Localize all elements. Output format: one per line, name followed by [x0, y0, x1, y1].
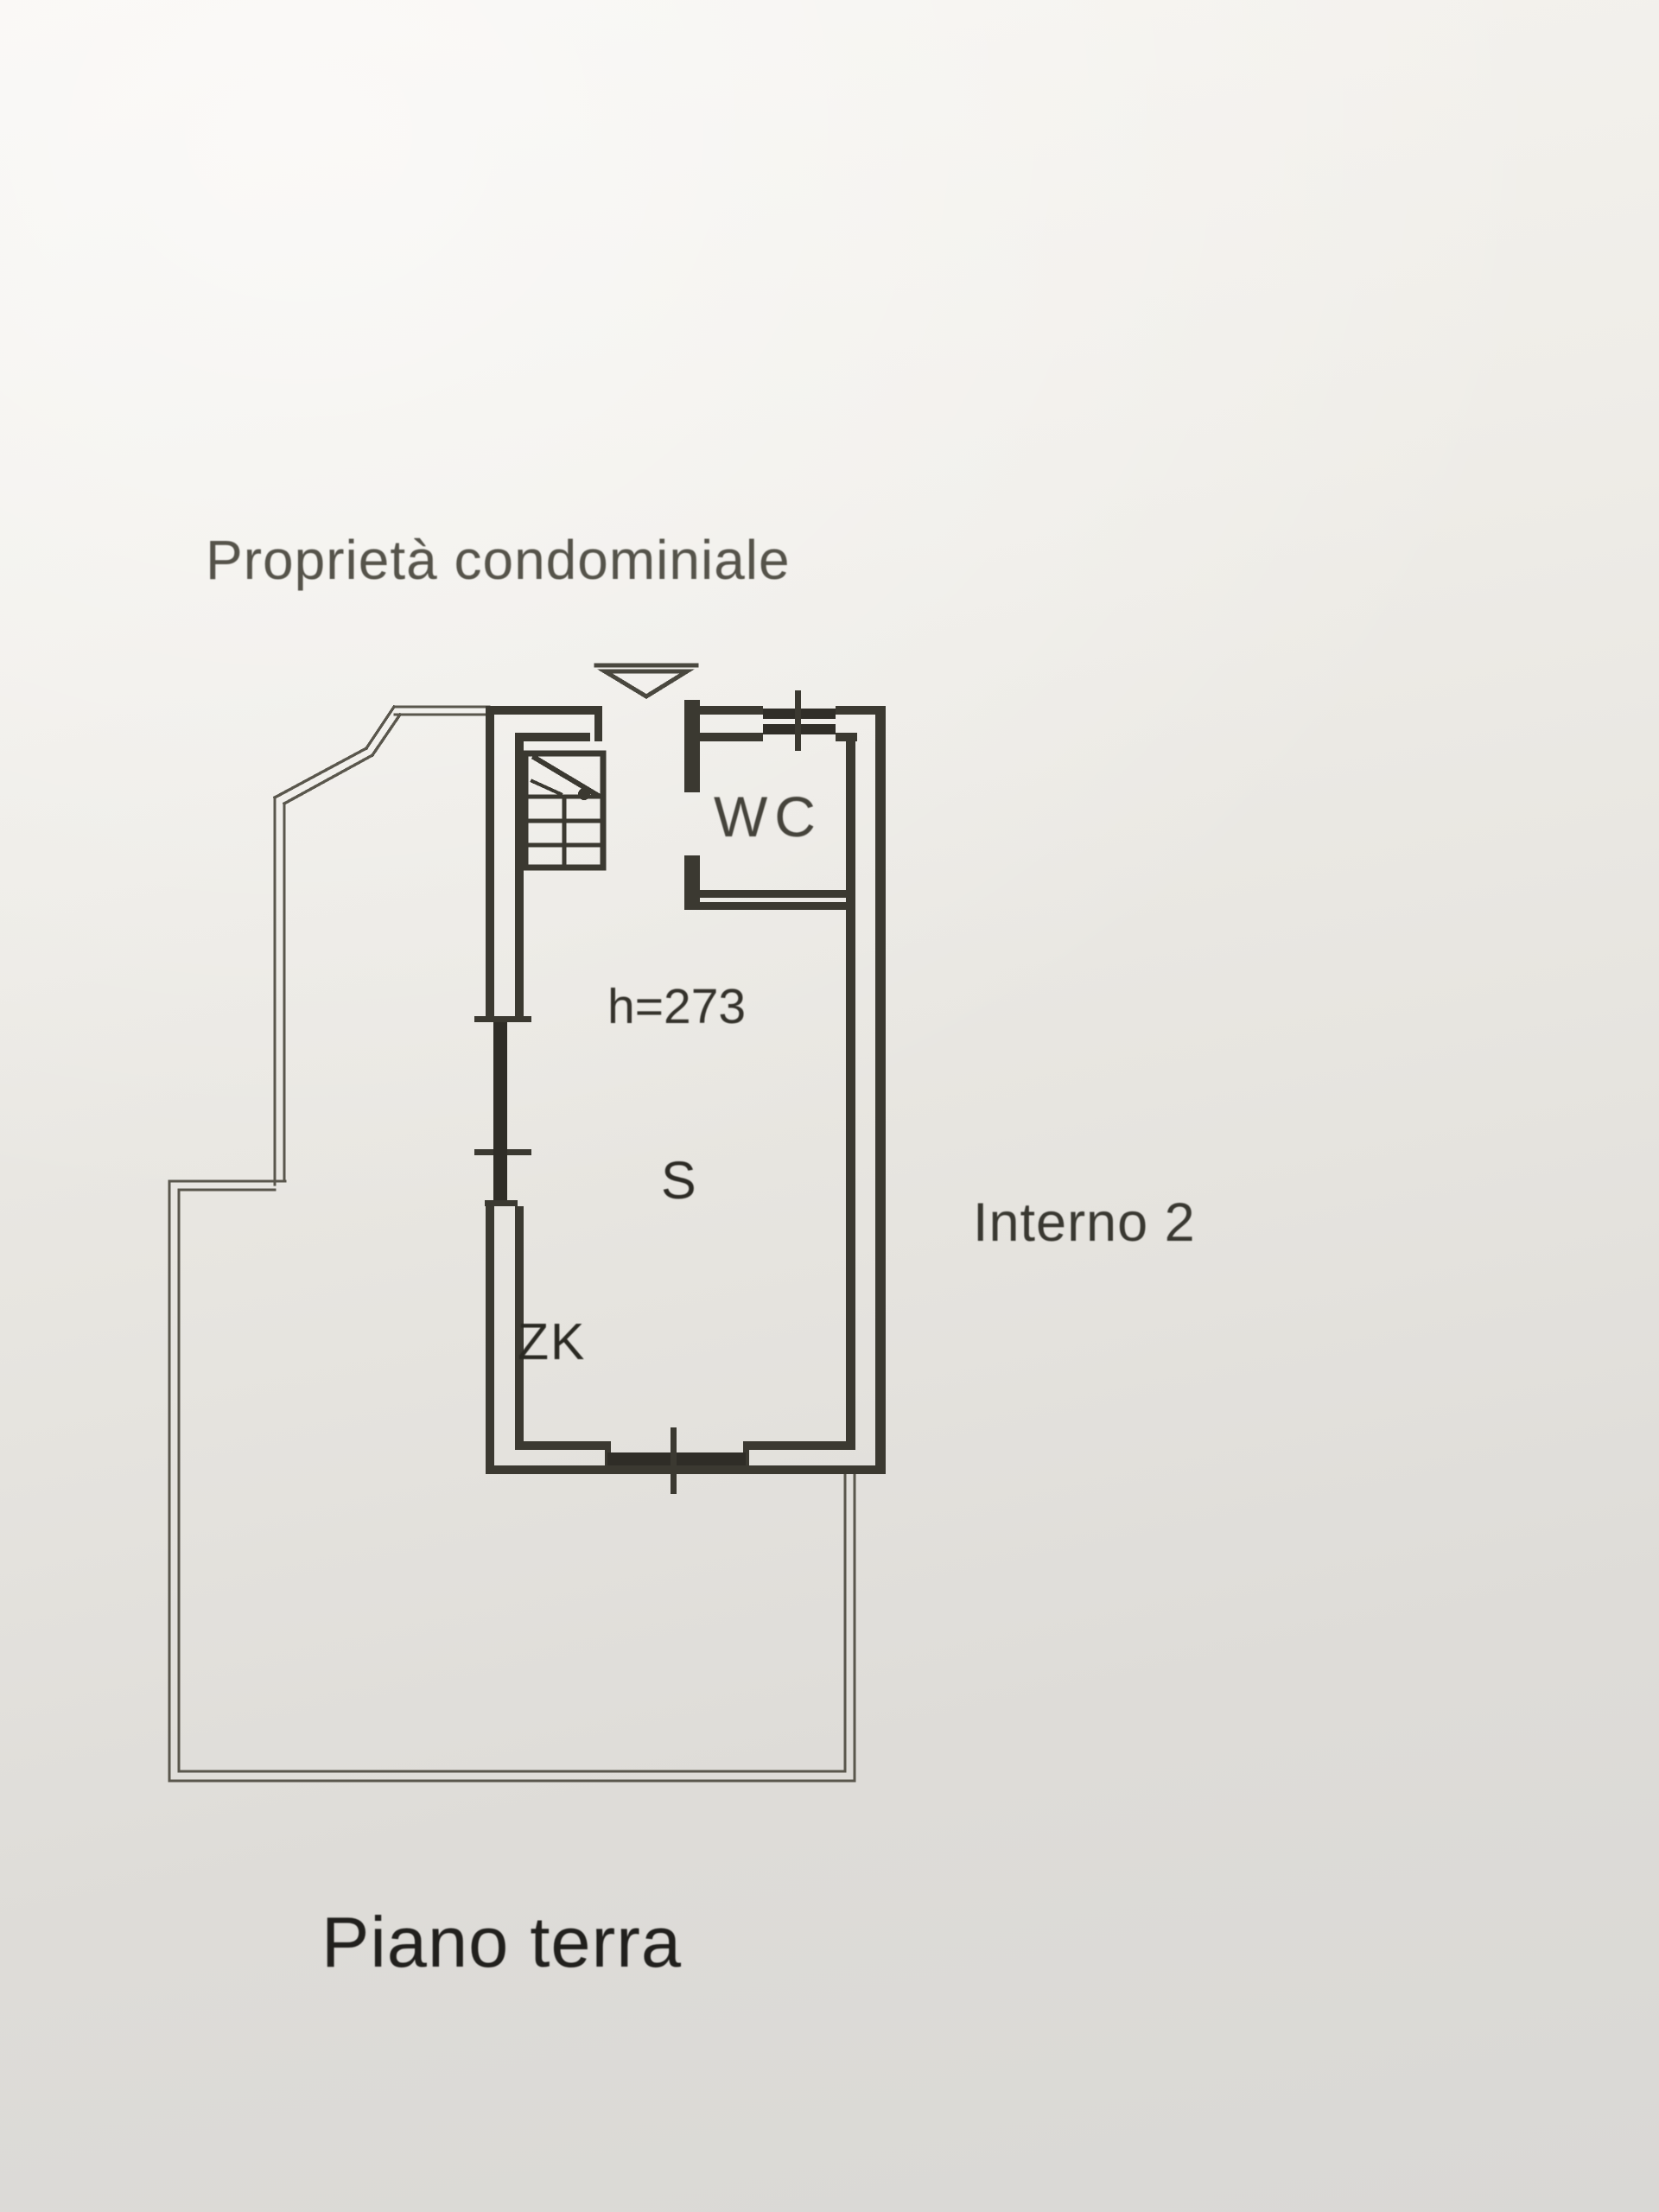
label-room-wc: WC: [714, 788, 823, 845]
wall-wc-partition-upper: [696, 890, 855, 898]
label-ceiling-height: h=273: [607, 982, 746, 1032]
wall-right-outer: [875, 706, 886, 1474]
wall-bottom-outer: [486, 1465, 886, 1474]
wall-bottom-inner-left: [515, 1441, 607, 1450]
window-bottom-wall: [605, 1427, 749, 1494]
wall-wc-top-outer-left: [700, 706, 763, 715]
wall-wc-top-inner-left: [700, 733, 763, 741]
stair-direction-dot: [578, 788, 590, 800]
label-piano-terra: Piano terra: [321, 1906, 682, 1978]
label-interno-2: Interno 2: [973, 1196, 1196, 1250]
wall-top-endcap: [594, 706, 602, 741]
staircase: [525, 753, 603, 868]
scanned-floor-plan-page: Proprietà condominiale WC h=273 S Intern…: [0, 0, 1659, 2212]
window-left-wall: [474, 1016, 531, 1206]
wall-left-outer-upper: [486, 706, 494, 1020]
label-room-zk: ZK: [518, 1317, 586, 1368]
wall-wc-left-upper: [684, 700, 700, 792]
label-room-s: S: [661, 1154, 696, 1207]
property-boundary-line: [169, 707, 855, 1781]
wall-bottom-inner-right: [746, 1441, 855, 1450]
wall-right-inner: [846, 733, 855, 1445]
window-wc: [763, 690, 836, 751]
entrance-arrow-icon: [596, 665, 696, 696]
label-proprieta-condominiale: Proprietà condominiale: [206, 532, 791, 588]
wall-left-outer-lower: [486, 1206, 494, 1474]
wall-wc-partition-lower: [684, 902, 855, 910]
wall-top-outer: [486, 706, 602, 715]
wall-top-inner: [524, 733, 590, 741]
floor-plan-drawing: [0, 0, 1659, 2212]
